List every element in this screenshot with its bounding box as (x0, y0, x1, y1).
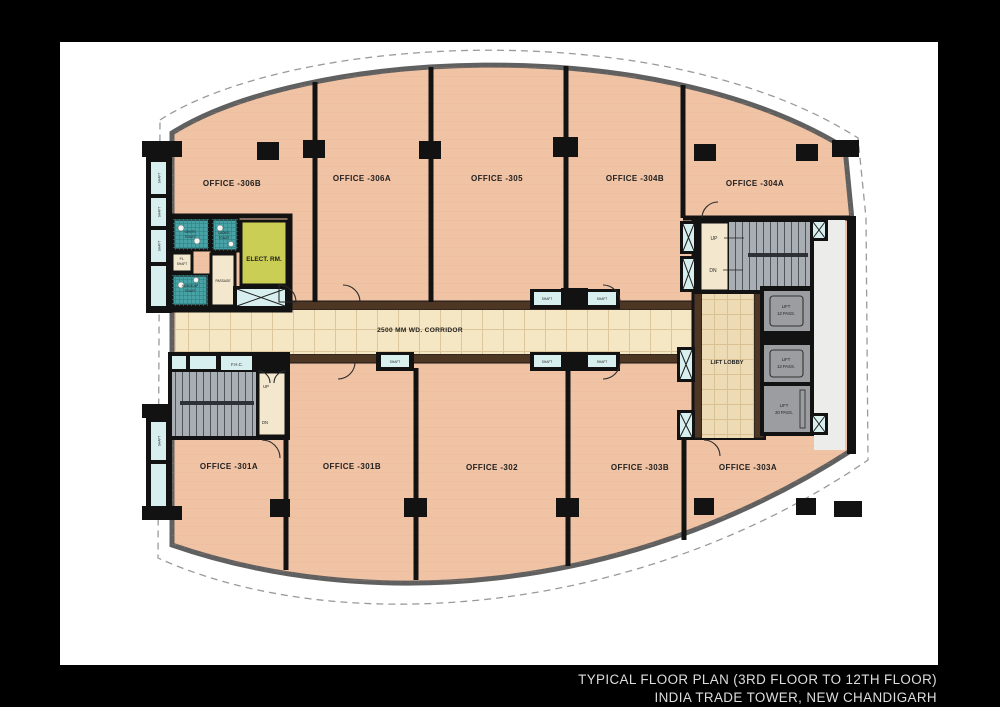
stair-sw-dn-label: DN (262, 420, 268, 425)
lift-lobby-label: LIFT LOBBY (711, 360, 744, 366)
stair-vestibule-southwest (258, 372, 286, 436)
pl-shaft-label-2: SHAFT (177, 262, 188, 266)
shaft-label-w3: SHAFT (158, 241, 162, 252)
drawing-sheet-frame: OFFICE -306B OFFICE -306A OFFICE -305 OF… (0, 0, 1000, 707)
room-label-office-306a: OFFICE -306A (333, 174, 391, 183)
room-label-office-304b: OFFICE -304B (606, 174, 664, 183)
shaft-label-w4: SHAFT (158, 436, 162, 447)
passage-label: PASSAGE (216, 279, 231, 283)
stair-vestibule-northeast (700, 222, 729, 291)
lift1-capacity: 13 PASS. (777, 311, 795, 316)
room-label-office-302: OFFICE -302 (466, 463, 518, 472)
shaft-label-n1: SHAFT (542, 297, 553, 301)
ladies-label-1: LADIES (218, 231, 229, 235)
room-label-office-304a: OFFICE -304A (726, 179, 784, 188)
drawing-title-line2: INDIA TRADE TOWER, NEW CHANDIGARH (654, 690, 937, 705)
wall-east-edge (847, 216, 856, 454)
room-label-office-303a: OFFICE -303A (719, 463, 777, 472)
shaft-label-w2: SHAFT (158, 207, 162, 218)
lift2-capacity: 13 PASS. (777, 364, 795, 369)
lift3-capacity: 20 PASS. (775, 410, 793, 415)
handicap-label-2: TOILET (184, 289, 195, 293)
corridor-label: 2500 MM WD. CORRIDOR (377, 327, 463, 334)
stair-sw-up-label: UP (263, 384, 269, 389)
room-label-office-301b: OFFICE -301B (323, 462, 381, 471)
gents-label-2: TOILET (184, 235, 195, 239)
floor-plan-canvas: OFFICE -306B OFFICE -306A OFFICE -305 OF… (0, 0, 1000, 707)
pl-shaft-label-1: PL. (180, 257, 185, 261)
handicap-label-1: HANDICAP (182, 284, 198, 288)
electrical-room-label: ELECT. RM. (246, 256, 282, 263)
lift3-label: LIFT (780, 403, 789, 408)
electrical-room (241, 221, 287, 285)
ladies-label-2: TOILET (218, 236, 229, 240)
lift-20-pass (764, 386, 810, 432)
shaft-label-s2: SHAFT (542, 360, 553, 364)
room-label-office-301a: OFFICE -301A (200, 462, 258, 471)
room-label-office-305: OFFICE -305 (471, 174, 523, 183)
fhc-label: F.H.C. (231, 362, 243, 367)
lift1-label: LIFT (782, 304, 791, 309)
gents-label-1: GENTS (185, 230, 196, 234)
stair-ne-up-label: UP (711, 236, 719, 242)
shaft-label-n2: SHAFT (597, 297, 608, 301)
shaft-label-s1: SHAFT (390, 360, 401, 364)
lift2-label: LIFT (782, 357, 791, 362)
shaft-label-w1: SHAFT (158, 173, 162, 184)
drawing-title-line1: TYPICAL FLOOR PLAN (3RD FLOOR TO 12TH FL… (578, 672, 937, 687)
stair-ne-dn-label: DN (709, 268, 717, 274)
shaft-label-s3: SHAFT (597, 360, 608, 364)
room-label-office-303b: OFFICE -303B (611, 463, 669, 472)
room-label-office-306b: OFFICE -306B (203, 179, 261, 188)
